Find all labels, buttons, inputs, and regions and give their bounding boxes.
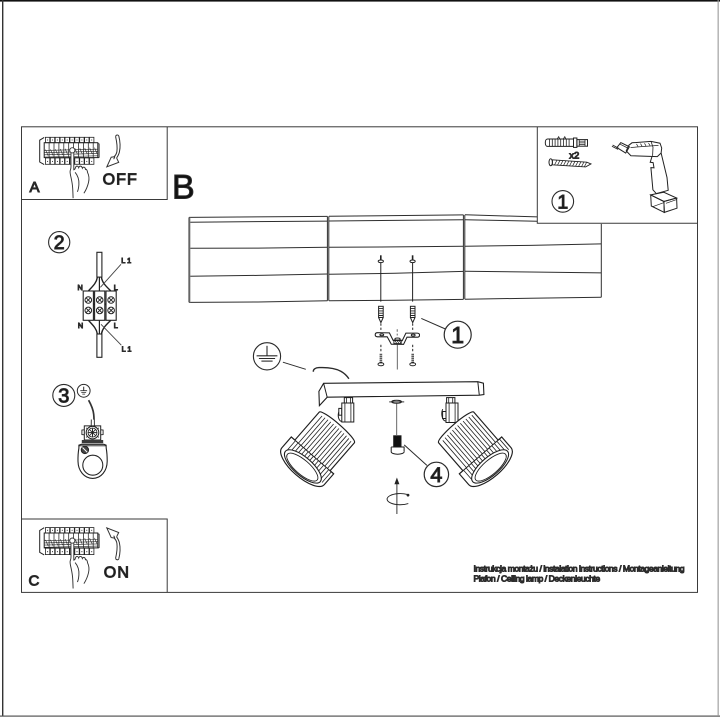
svg-text:N: N bbox=[78, 321, 83, 330]
svg-text:L 1: L 1 bbox=[121, 256, 131, 265]
svg-text:L: L bbox=[114, 283, 118, 292]
svg-text:ON: ON bbox=[104, 564, 130, 581]
svg-text:B: B bbox=[172, 168, 195, 206]
svg-text:C: C bbox=[29, 572, 40, 589]
svg-text:N: N bbox=[78, 283, 83, 292]
svg-text:1: 1 bbox=[451, 322, 464, 348]
svg-text:2: 2 bbox=[54, 232, 65, 254]
svg-text:Plafon / Ceiling lamp / Decken: Plafon / Ceiling lamp / Deckenleuchte bbox=[474, 574, 601, 584]
svg-text:4: 4 bbox=[430, 463, 442, 487]
svg-text:3: 3 bbox=[58, 386, 69, 408]
svg-text:OFF: OFF bbox=[103, 171, 138, 188]
svg-text:x2: x2 bbox=[569, 150, 579, 161]
svg-text:1: 1 bbox=[557, 191, 568, 213]
svg-text:Instrukcja montażu / instalati: Instrukcja montażu / instalation instruc… bbox=[474, 563, 685, 573]
svg-text:L: L bbox=[114, 321, 118, 330]
svg-text:A: A bbox=[30, 179, 40, 196]
svg-text:L 1: L 1 bbox=[122, 344, 132, 353]
